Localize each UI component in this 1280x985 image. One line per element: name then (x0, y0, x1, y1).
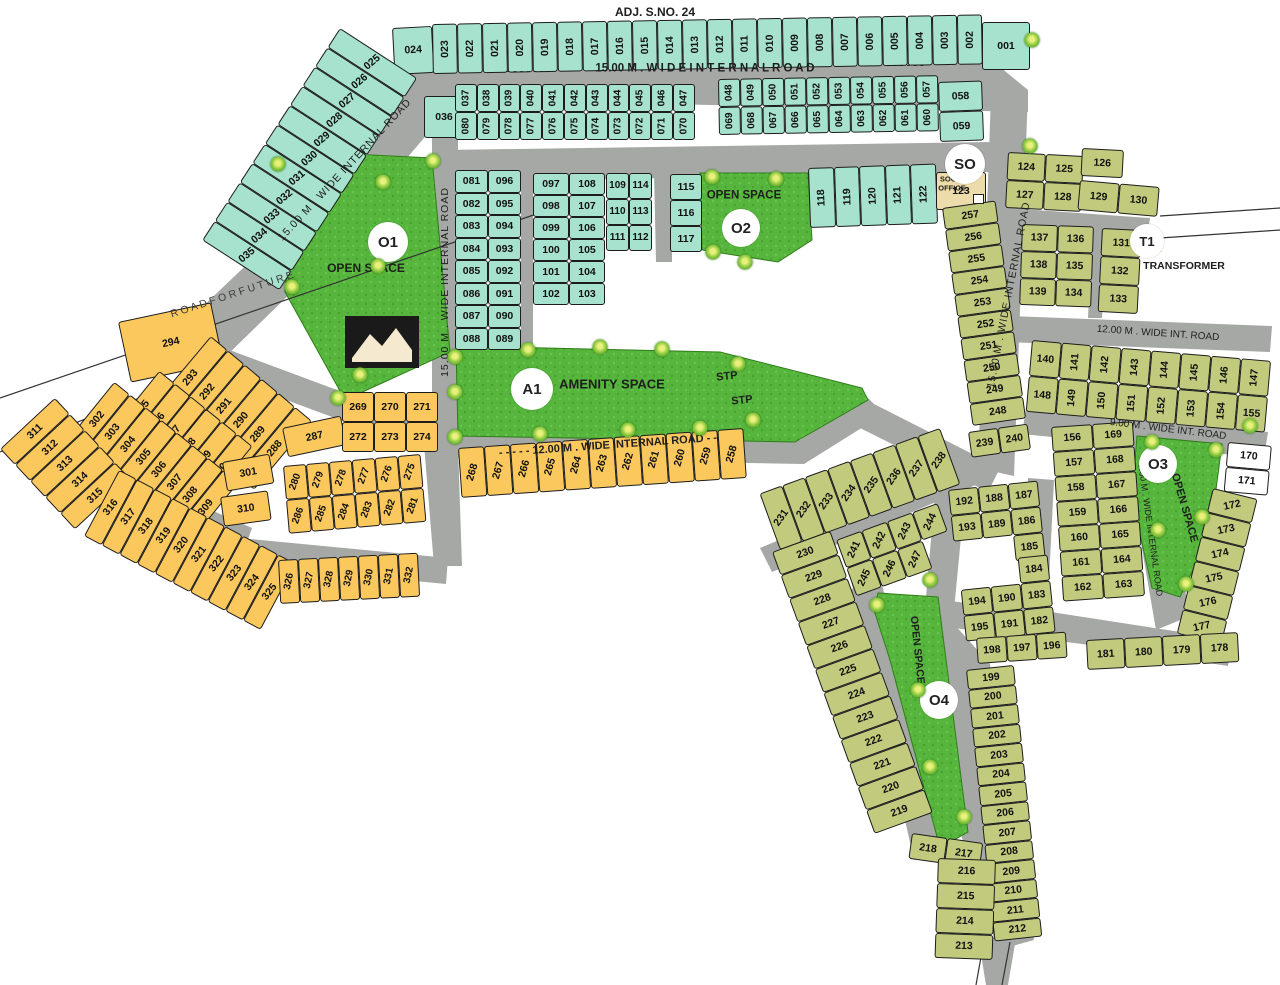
marker-o1: O1 (368, 222, 408, 262)
plot-141: 141 (1059, 343, 1092, 381)
plot-240: 240 (998, 424, 1031, 454)
marker-so: SO (945, 144, 985, 184)
plot-004: 004 (907, 15, 933, 65)
plot-044: 044 (608, 84, 630, 112)
tree-icon (448, 430, 463, 445)
plot-120: 120 (859, 165, 887, 226)
transformer-label: TRANSFORMER (1143, 261, 1225, 272)
plot-167: 167 (1095, 471, 1138, 499)
plot-145: 145 (1178, 353, 1211, 391)
plot-280: 280 (283, 464, 309, 500)
tree-icon (738, 255, 753, 270)
tree-icon (331, 391, 346, 406)
plot-096: 096 (488, 170, 521, 193)
plot-188: 188 (978, 484, 1011, 513)
plot-057: 057 (916, 75, 938, 103)
plot-269: 269 (342, 392, 374, 422)
plot-283: 283 (355, 492, 381, 528)
plot-274: 274 (406, 422, 438, 452)
office-label: OFFICE (938, 184, 966, 192)
tree-icon (285, 280, 300, 295)
plot-163: 163 (1102, 571, 1145, 599)
plot-100: 100 (533, 239, 569, 261)
tree-icon (426, 154, 441, 169)
plot-105: 105 (569, 239, 605, 261)
tree-icon (353, 368, 368, 383)
road-label-top-dash-right: - - - - - - (886, 61, 923, 72)
plot-135: 135 (1056, 252, 1093, 280)
plot-121: 121 (884, 164, 912, 225)
plot-086: 086 (455, 283, 488, 306)
plot-101: 101 (533, 261, 569, 283)
plot-095: 095 (488, 193, 521, 216)
plot-278: 278 (329, 460, 355, 496)
tree-icon (621, 423, 636, 438)
plot-023: 023 (432, 24, 458, 74)
plot-051: 051 (784, 77, 806, 105)
plot-186: 186 (1010, 506, 1043, 535)
plot-118: 118 (808, 167, 836, 228)
plot-281: 281 (401, 488, 427, 524)
plot-091: 091 (488, 283, 521, 306)
road-label-top: 15.00 M . W I D E I N T E R N A L R O A … (595, 63, 814, 75)
plot-331: 331 (378, 554, 400, 599)
tree-icon (769, 172, 784, 187)
plot-134: 134 (1055, 279, 1092, 307)
plot-097: 097 (533, 173, 569, 195)
plot-159: 159 (1056, 499, 1099, 527)
tree-icon (957, 810, 972, 825)
plot-050: 050 (762, 78, 784, 106)
plot-058: 058 (938, 80, 983, 112)
stp-label-2: STP (731, 394, 753, 407)
plot-067: 067 (762, 106, 784, 134)
plot-085: 085 (455, 260, 488, 283)
marker-a1: A1 (511, 368, 553, 410)
plot-139: 139 (1019, 278, 1056, 306)
plot-329: 329 (338, 556, 360, 601)
marker-o2: O2 (722, 209, 760, 247)
plot-275: 275 (398, 454, 424, 490)
tree-icon (1151, 523, 1166, 538)
plot-107: 107 (569, 195, 605, 217)
plot-160: 160 (1058, 524, 1101, 552)
plot-143: 143 (1119, 348, 1152, 386)
plot-286: 286 (286, 498, 312, 534)
stp-label-1: STP (716, 370, 738, 383)
plot-002: 002 (957, 14, 983, 64)
plot-170: 170 (1226, 442, 1272, 471)
plot-144: 144 (1148, 350, 1181, 388)
plot-099: 099 (533, 217, 569, 239)
plot-270: 270 (374, 392, 406, 422)
plot-006: 006 (857, 16, 883, 66)
plot-150: 150 (1085, 381, 1118, 419)
plot-039: 039 (499, 84, 521, 112)
plot-046: 046 (651, 84, 673, 112)
plot-146: 146 (1208, 356, 1241, 394)
plot-181: 181 (1086, 638, 1126, 670)
plot-111: 111 (606, 225, 629, 251)
plot-197: 197 (1006, 634, 1038, 662)
plot-045: 045 (629, 84, 651, 112)
plot-084: 084 (455, 238, 488, 261)
adj-sno-label: ADJ. S.NO. 24 (615, 6, 695, 18)
plot-156: 156 (1051, 424, 1094, 452)
plot-239: 239 (968, 428, 1001, 458)
plot-112: 112 (629, 225, 652, 251)
tree-icon (521, 343, 536, 358)
plot-133: 133 (1098, 284, 1139, 314)
plot-087: 087 (455, 305, 488, 328)
plot-328: 328 (318, 557, 340, 602)
plot-268: 268 (458, 446, 487, 498)
plot-052: 052 (806, 77, 828, 105)
plot-152: 152 (1145, 386, 1178, 424)
plot-124: 124 (1007, 152, 1046, 182)
plot-010: 010 (757, 18, 783, 68)
plot-106: 106 (569, 217, 605, 239)
plot-094: 094 (488, 215, 521, 238)
plot-198: 198 (976, 636, 1008, 664)
plot-115: 115 (670, 174, 702, 200)
amenity-space-label: AMENITY SPACE (559, 378, 665, 391)
plot-149: 149 (1056, 378, 1089, 416)
plot-182: 182 (1023, 606, 1056, 635)
plot-187: 187 (1008, 481, 1041, 510)
plot-125: 125 (1044, 154, 1083, 184)
plot-073: 073 (608, 112, 630, 140)
plot-072: 072 (629, 112, 651, 140)
plot-215: 215 (936, 883, 995, 910)
plot-258: 258 (717, 428, 746, 480)
plot-130: 130 (1117, 183, 1159, 216)
plot-117: 117 (670, 226, 702, 252)
plot-053: 053 (828, 77, 850, 105)
plot-147: 147 (1238, 358, 1271, 396)
tree-icon (1179, 577, 1194, 592)
tree-icon (1025, 33, 1040, 48)
plot-018: 018 (557, 21, 583, 71)
plot-001: 001 (982, 22, 1030, 70)
plot-332: 332 (398, 553, 420, 598)
plot-062: 062 (872, 104, 894, 132)
tree-icon (693, 421, 708, 436)
plot-049: 049 (740, 78, 762, 106)
clubhouse-icon (345, 316, 419, 368)
plot-011: 011 (732, 18, 758, 68)
plot-066: 066 (784, 105, 806, 133)
tree-icon (923, 760, 938, 775)
tree-icon (1195, 510, 1210, 525)
plot-021: 021 (482, 23, 508, 73)
plot-330: 330 (358, 555, 380, 600)
plot-214: 214 (935, 908, 994, 935)
plot-080: 080 (455, 112, 477, 140)
plot-168: 168 (1094, 446, 1137, 474)
plot-075: 075 (564, 112, 586, 140)
plot-196: 196 (1036, 632, 1068, 660)
plot-114: 114 (629, 173, 652, 199)
plot-093: 093 (488, 238, 521, 261)
tree-icon (706, 245, 721, 260)
tree-icon (448, 350, 463, 365)
plot-178: 178 (1200, 632, 1240, 664)
plot-162: 162 (1061, 574, 1104, 602)
plot-216: 216 (937, 858, 996, 885)
plot-082: 082 (455, 193, 488, 216)
plot-142: 142 (1089, 345, 1122, 383)
plot-089: 089 (488, 328, 521, 351)
plot-192: 192 (948, 487, 981, 516)
road-label-top-dash-left: - - - - - - (506, 67, 543, 78)
plot-138: 138 (1020, 251, 1057, 279)
plot-056: 056 (894, 76, 916, 104)
plot-154: 154 (1205, 392, 1238, 430)
plot-040: 040 (520, 84, 542, 112)
tree-icon (911, 683, 926, 698)
open-space-o2-label: OPEN SPACE (707, 190, 782, 202)
plot-003: 003 (932, 15, 958, 65)
plot-layout-map: 0240230220210200190180170160150140130120… (0, 0, 1280, 985)
plot-213: 213 (935, 933, 994, 960)
plot-037: 037 (455, 84, 477, 112)
tree-icon (371, 259, 386, 274)
tree-icon (271, 157, 286, 172)
plot-077: 077 (520, 112, 542, 140)
plot-054: 054 (850, 76, 872, 104)
plot-285: 285 (309, 496, 335, 532)
plot-140: 140 (1029, 340, 1062, 378)
plot-157: 157 (1053, 449, 1096, 477)
tree-icon (376, 175, 391, 190)
tree-icon (593, 340, 608, 355)
plot-113: 113 (629, 199, 652, 225)
plot-190: 190 (991, 584, 1024, 613)
tree-icon (1023, 139, 1038, 154)
tree-icon (746, 413, 761, 428)
plot-038: 038 (477, 84, 499, 112)
plot-271: 271 (406, 392, 438, 422)
plot-065: 065 (806, 105, 828, 133)
plot-079: 079 (477, 112, 499, 140)
tree-icon (533, 427, 548, 442)
plot-008: 008 (807, 17, 833, 67)
plot-273: 273 (374, 422, 406, 452)
tree-icon (448, 385, 463, 400)
plot-277: 277 (352, 458, 378, 494)
marker-t1: T1 (1130, 224, 1164, 258)
plot-183: 183 (1020, 580, 1053, 609)
plot-092: 092 (488, 260, 521, 283)
plot-063: 063 (850, 104, 872, 132)
plot-164: 164 (1101, 546, 1144, 574)
plot-279: 279 (306, 462, 332, 498)
plot-148: 148 (1026, 376, 1059, 414)
plot-088: 088 (455, 328, 488, 351)
tree-icon (1243, 419, 1258, 434)
plot-061: 061 (894, 104, 916, 132)
plot-090: 090 (488, 305, 521, 328)
plot-022: 022 (457, 23, 483, 73)
plot-047: 047 (673, 84, 695, 112)
soc-office-square-icon (973, 194, 984, 204)
plot-326: 326 (278, 559, 300, 604)
plot-070: 070 (673, 112, 695, 140)
plot-171: 171 (1224, 467, 1270, 496)
plot-064: 064 (828, 105, 850, 133)
plot-009: 009 (782, 17, 808, 67)
plot-126: 126 (1081, 148, 1124, 178)
tree-icon (1209, 443, 1224, 458)
plot-048: 048 (718, 79, 740, 107)
plot-071: 071 (651, 112, 673, 140)
plot-041: 041 (542, 84, 564, 112)
plot-193: 193 (951, 513, 984, 542)
plot-074: 074 (586, 112, 608, 140)
plot-276: 276 (375, 456, 401, 492)
plot-122: 122 (910, 164, 938, 225)
plot-078: 078 (499, 112, 521, 140)
plot-161: 161 (1060, 549, 1103, 577)
plot-069: 069 (718, 107, 740, 135)
plot-165: 165 (1099, 521, 1142, 549)
marker-o3: O3 (1139, 445, 1177, 483)
plot-179: 179 (1162, 634, 1202, 666)
open-space-o1-label: OPEN SPACE (327, 262, 405, 274)
plot-136: 136 (1057, 225, 1094, 253)
plot-102: 102 (533, 283, 569, 305)
tree-icon (655, 342, 670, 357)
tree-icon (705, 170, 720, 185)
plot-151: 151 (1115, 384, 1148, 422)
plot-042: 042 (564, 84, 586, 112)
plot-109: 109 (606, 173, 629, 199)
plot-060: 060 (916, 103, 938, 131)
plot-132: 132 (1099, 256, 1140, 286)
plot-128: 128 (1043, 182, 1082, 212)
plot-284: 284 (332, 494, 358, 530)
plot-129: 129 (1077, 180, 1119, 213)
tree-icon (870, 598, 885, 613)
plot-153: 153 (1175, 389, 1208, 427)
plot-116: 116 (670, 200, 702, 226)
marker-o4: O4 (920, 681, 958, 719)
plot-083: 083 (455, 215, 488, 238)
plot-068: 068 (740, 106, 762, 134)
plot-184: 184 (1018, 555, 1051, 584)
plot-055: 055 (872, 76, 894, 104)
plot-119: 119 (833, 166, 861, 227)
plot-180: 180 (1124, 636, 1164, 668)
plot-272: 272 (342, 422, 374, 452)
plot-043: 043 (586, 84, 608, 112)
plot-081: 081 (455, 170, 488, 193)
road-label-15m-vertical: 15.00 M . WIDE INTERNAL ROAD (440, 187, 451, 377)
plot-104: 104 (569, 261, 605, 283)
plot-189: 189 (981, 510, 1014, 539)
plot-158: 158 (1054, 474, 1097, 502)
plot-076: 076 (542, 112, 564, 140)
tree-icon (1145, 435, 1160, 450)
plot-282: 282 (378, 490, 404, 526)
plot-007: 007 (832, 17, 858, 67)
plot-194: 194 (961, 587, 994, 616)
tree-icon (923, 573, 938, 588)
plot-108: 108 (569, 173, 605, 195)
plot-103: 103 (569, 283, 605, 305)
plot-110: 110 (606, 199, 629, 225)
plot-059: 059 (939, 110, 984, 142)
tree-icon (731, 357, 746, 372)
plot-166: 166 (1097, 496, 1140, 524)
plot-327: 327 (298, 558, 320, 603)
plot-098: 098 (533, 195, 569, 217)
